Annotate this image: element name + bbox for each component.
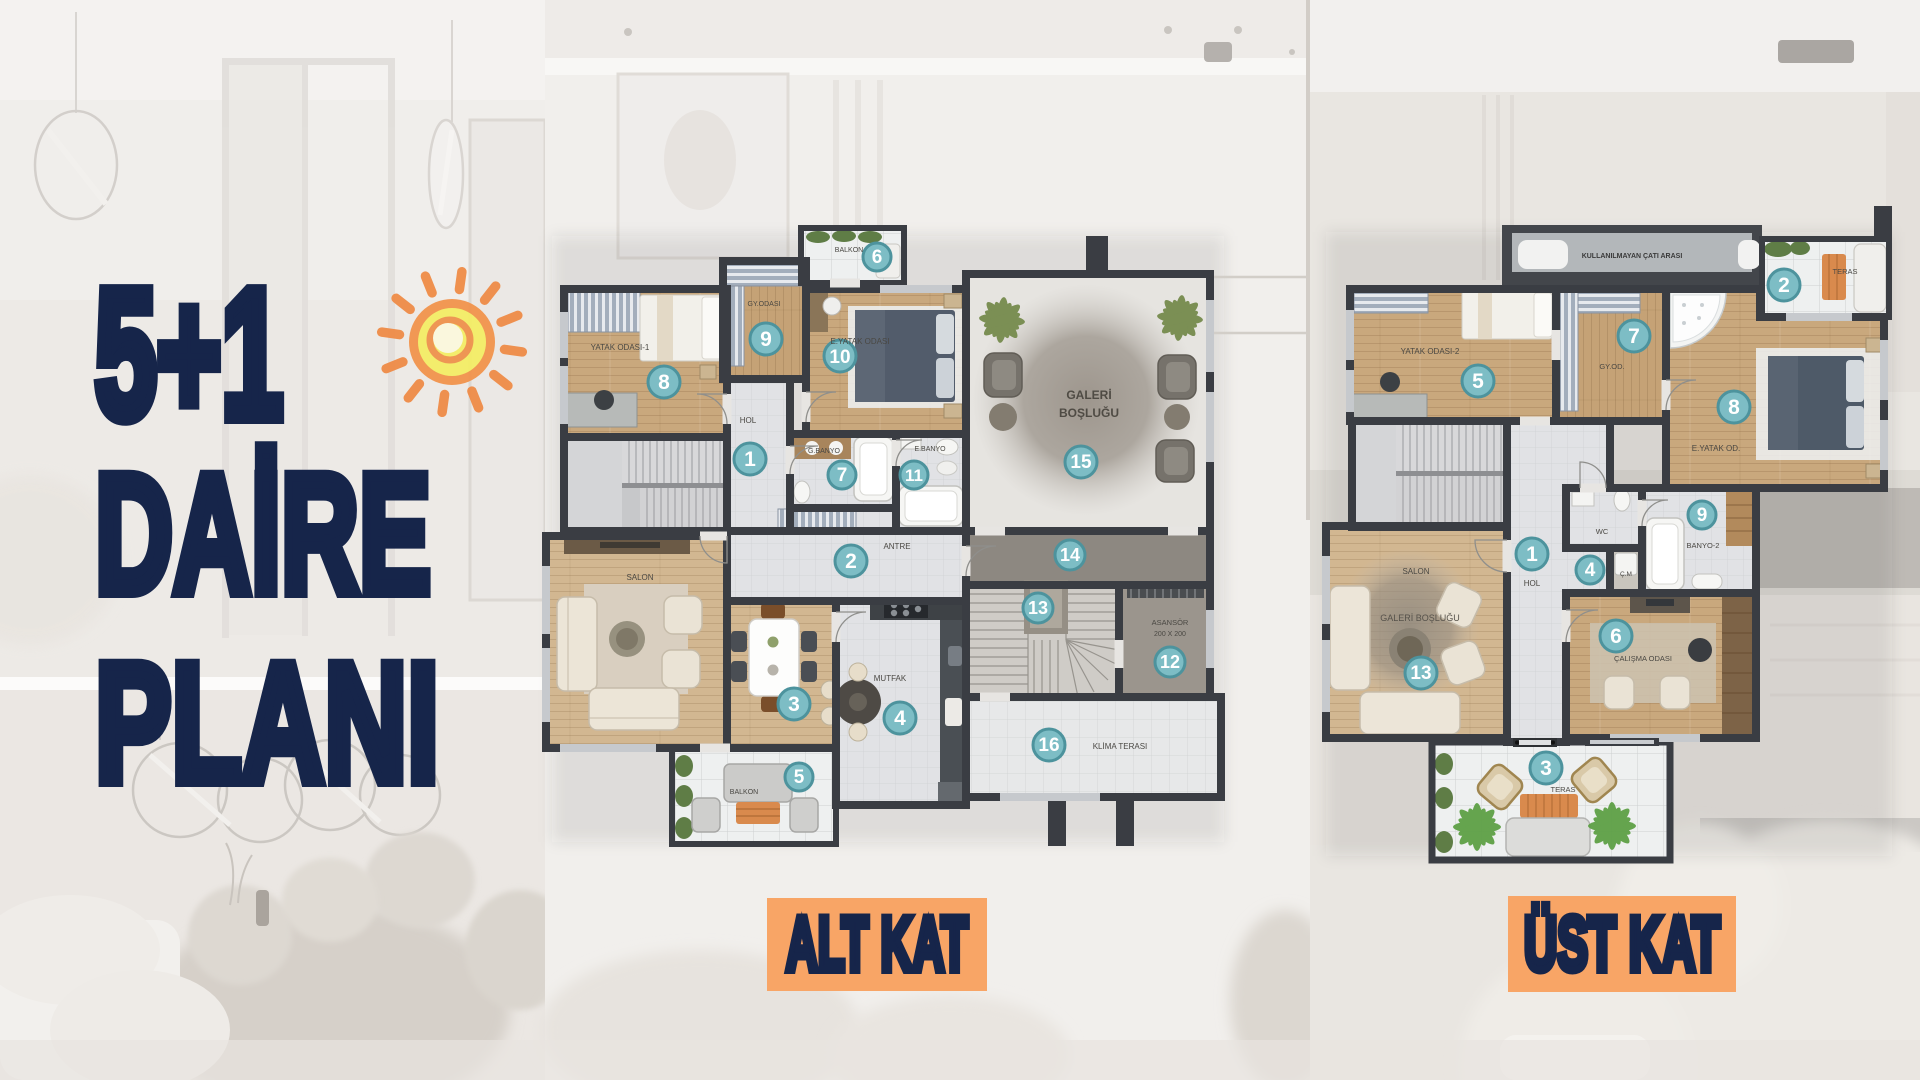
svg-text:GALERİ: GALERİ	[1066, 387, 1111, 402]
svg-text:BANYO-2: BANYO-2	[1687, 541, 1720, 550]
svg-text:4: 4	[1585, 560, 1596, 581]
svg-text:HOL: HOL	[1524, 579, 1541, 588]
svg-text:5+1: 5+1	[95, 251, 283, 456]
svg-text:WC: WC	[1596, 527, 1609, 536]
svg-text:16: 16	[1038, 735, 1059, 756]
svg-text:5: 5	[1472, 370, 1484, 393]
svg-text:9: 9	[760, 328, 772, 351]
svg-text:GY.ODASI: GY.ODASI	[748, 301, 781, 308]
svg-text:SALON: SALON	[626, 573, 653, 582]
svg-text:GALERİ BOŞLUĞU: GALERİ BOŞLUĞU	[1380, 613, 1460, 623]
svg-text:SALON: SALON	[1402, 567, 1429, 576]
svg-text:200 X 200: 200 X 200	[1154, 631, 1186, 638]
svg-text:TERAS: TERAS	[1832, 267, 1857, 276]
svg-text:KLİMA TERASI: KLİMA TERASI	[1093, 742, 1148, 751]
svg-text:G.BANYO: G.BANYO	[808, 448, 840, 455]
svg-text:GY.OD.: GY.OD.	[1599, 362, 1624, 371]
svg-text:6: 6	[1610, 625, 1622, 648]
svg-text:2: 2	[845, 550, 857, 573]
svg-text:12: 12	[1160, 652, 1180, 672]
svg-text:ASANSÖR: ASANSÖR	[1152, 618, 1189, 627]
svg-text:13: 13	[1028, 598, 1048, 618]
svg-text:Ç.M: Ç.M	[1620, 571, 1632, 578]
svg-text:7: 7	[837, 465, 848, 486]
svg-text:2: 2	[1778, 274, 1790, 297]
svg-text:BALKON: BALKON	[835, 247, 863, 254]
svg-text:1: 1	[1526, 543, 1538, 566]
svg-text:6: 6	[872, 247, 883, 268]
svg-text:4: 4	[894, 707, 906, 730]
svg-text:5: 5	[794, 767, 805, 788]
svg-text:HOL: HOL	[740, 416, 757, 425]
svg-text:TERAS: TERAS	[1550, 785, 1575, 794]
svg-text:8: 8	[1728, 396, 1740, 419]
svg-text:11: 11	[905, 466, 923, 485]
svg-text:BALKON: BALKON	[730, 789, 758, 796]
svg-text:YATAK ODASI-1: YATAK ODASI-1	[591, 343, 650, 352]
svg-text:ÇALIŞMA ODASI: ÇALIŞMA ODASI	[1614, 654, 1672, 663]
svg-text:E.BANYO: E.BANYO	[914, 446, 946, 453]
svg-text:DAİRE: DAİRE	[95, 439, 431, 628]
svg-text:E.YATAK OD.: E.YATAK OD.	[1692, 444, 1740, 453]
svg-text:MUTFAK: MUTFAK	[874, 674, 907, 683]
svg-text:3: 3	[1540, 757, 1552, 780]
svg-text:YATAK ODASI-2: YATAK ODASI-2	[1401, 347, 1460, 356]
svg-text:3: 3	[788, 693, 800, 716]
svg-text:7: 7	[1628, 325, 1640, 348]
svg-text:10: 10	[829, 347, 850, 368]
svg-text:14: 14	[1060, 545, 1080, 565]
svg-text:ANTRE: ANTRE	[883, 542, 910, 551]
svg-text:9: 9	[1697, 505, 1708, 526]
svg-text:KULLANILMAYAN ÇATI ARASI: KULLANILMAYAN ÇATI ARASI	[1582, 253, 1683, 260]
svg-text:ÜST KAT: ÜST KAT	[1524, 902, 1720, 987]
svg-text:8: 8	[658, 371, 670, 394]
svg-text:ALT KAT: ALT KAT	[786, 902, 968, 987]
svg-text:13: 13	[1410, 663, 1431, 684]
svg-text:BOŞLUĞU: BOŞLUĞU	[1059, 405, 1119, 420]
svg-text:E.YATAK ODASI: E.YATAK ODASI	[830, 337, 889, 346]
svg-text:1: 1	[744, 448, 756, 471]
svg-text:PLANI: PLANI	[95, 628, 439, 817]
svg-text:15: 15	[1070, 452, 1092, 473]
